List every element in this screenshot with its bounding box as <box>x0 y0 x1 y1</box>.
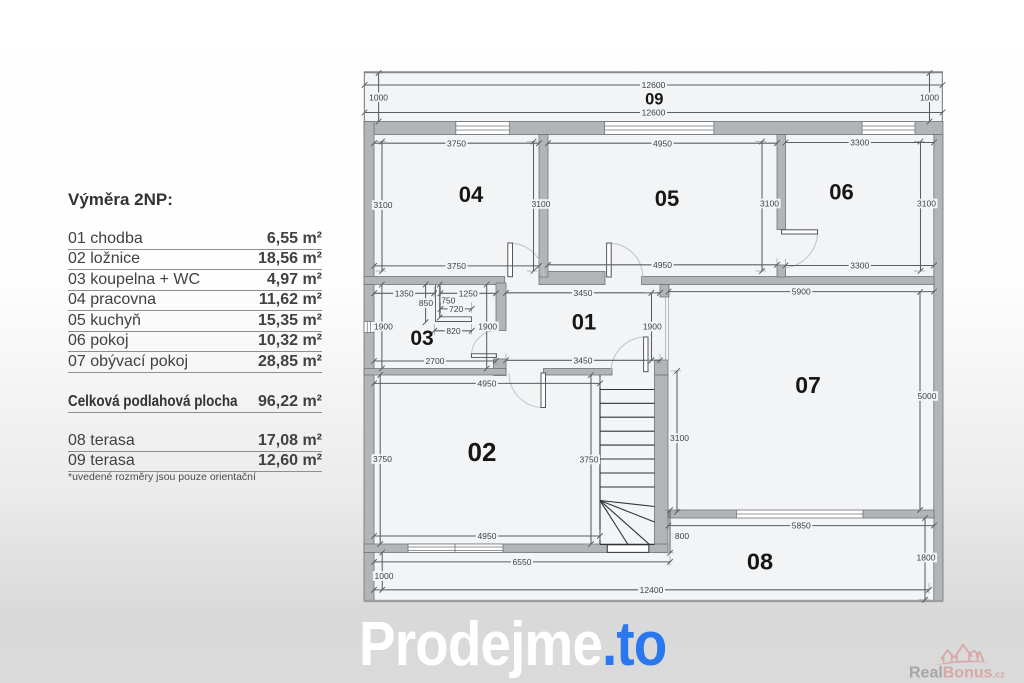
svg-text:06: 06 <box>829 179 853 204</box>
svg-text:3750: 3750 <box>447 261 466 271</box>
svg-text:5000: 5000 <box>918 391 937 401</box>
svg-text:1350: 1350 <box>395 288 414 298</box>
svg-text:3300: 3300 <box>850 261 869 271</box>
svg-text:03: 03 <box>410 327 433 350</box>
svg-text:RealBonus.cz: RealBonus.cz <box>909 664 1005 681</box>
svg-text:1900: 1900 <box>478 322 497 332</box>
svg-text:12400: 12400 <box>640 585 664 595</box>
svg-text:3100: 3100 <box>670 433 689 443</box>
svg-text:1250: 1250 <box>459 288 478 298</box>
svg-text:1000: 1000 <box>920 92 939 102</box>
svg-text:08: 08 <box>747 548 773 574</box>
svg-text:3750: 3750 <box>580 455 599 465</box>
svg-text:3100: 3100 <box>532 199 551 209</box>
svg-text:01: 01 <box>572 309 596 334</box>
svg-text:07: 07 <box>795 372 821 398</box>
svg-text:5850: 5850 <box>792 521 811 531</box>
svg-text:1000: 1000 <box>375 571 394 581</box>
svg-text:02: 02 <box>468 437 497 467</box>
svg-text:04: 04 <box>459 182 484 207</box>
svg-text:3300: 3300 <box>850 138 869 148</box>
svg-text:12600: 12600 <box>642 108 666 118</box>
svg-text:3100: 3100 <box>917 199 936 209</box>
svg-text:3750: 3750 <box>373 454 392 464</box>
svg-text:09: 09 <box>645 90 663 108</box>
svg-text:800: 800 <box>675 531 689 541</box>
svg-text:720: 720 <box>449 304 463 314</box>
svg-text:850: 850 <box>419 298 433 308</box>
svg-text:1800: 1800 <box>917 553 936 563</box>
svg-text:4950: 4950 <box>653 138 672 148</box>
svg-text:1000: 1000 <box>369 92 388 102</box>
svg-text:12600: 12600 <box>642 80 666 90</box>
svg-text:820: 820 <box>446 326 460 336</box>
svg-text:3450: 3450 <box>574 288 593 298</box>
svg-text:1900: 1900 <box>643 322 662 332</box>
svg-text:4950: 4950 <box>478 531 497 541</box>
svg-text:4950: 4950 <box>653 260 672 270</box>
svg-text:2700: 2700 <box>426 356 445 366</box>
svg-text:5900: 5900 <box>792 287 811 297</box>
svg-text:3100: 3100 <box>760 199 779 209</box>
svg-text:4950: 4950 <box>478 379 497 389</box>
svg-text:6550: 6550 <box>513 557 532 567</box>
svg-text:1900: 1900 <box>374 322 393 332</box>
svg-text:3750: 3750 <box>447 138 466 148</box>
svg-text:3100: 3100 <box>374 200 393 210</box>
svg-text:05: 05 <box>655 186 679 211</box>
svg-text:3450: 3450 <box>574 355 593 365</box>
